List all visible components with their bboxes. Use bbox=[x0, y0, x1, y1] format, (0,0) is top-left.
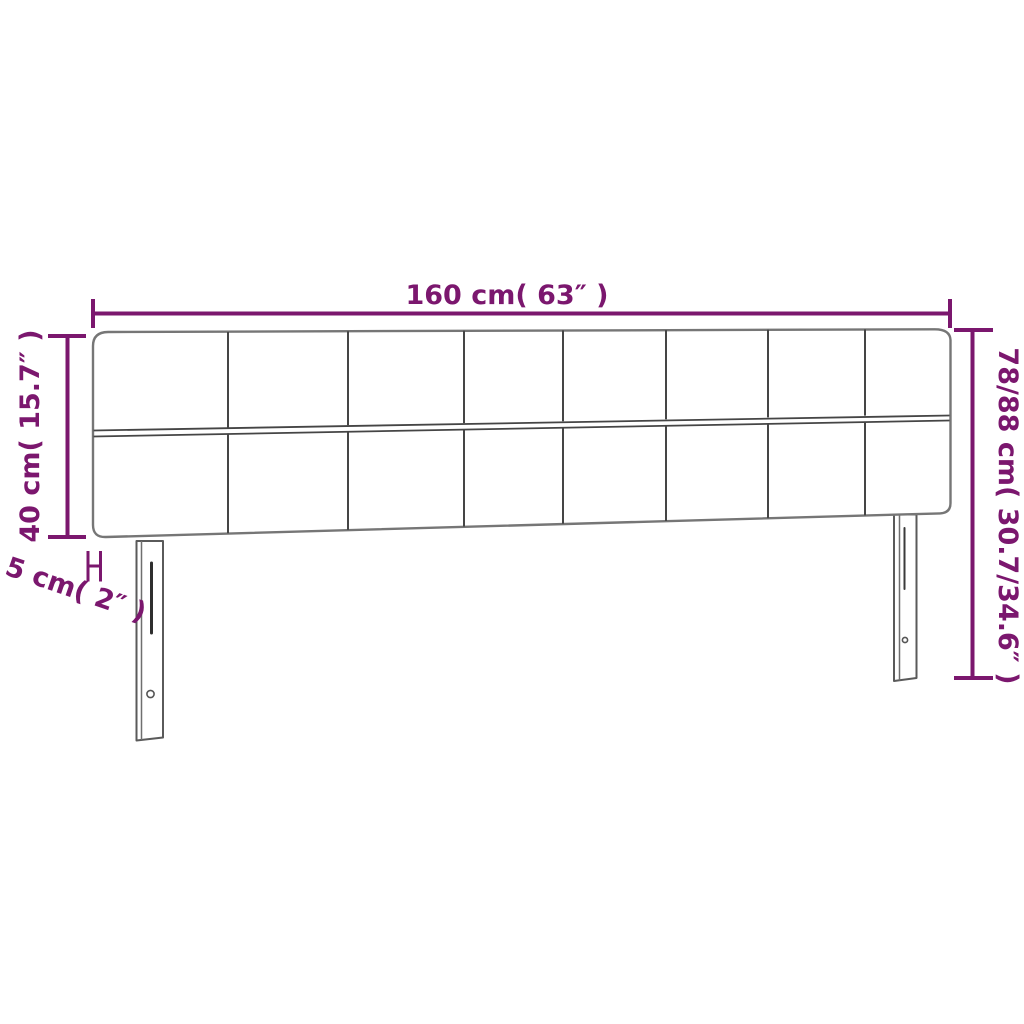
total-height-dimension-line bbox=[956, 330, 991, 678]
thickness-dimension-label: 5 cm( 2″ ) bbox=[1, 551, 150, 628]
total-height-dimension-label: 78/88 cm( 30.7/34.6″ ) bbox=[992, 347, 1023, 684]
diagram-canvas: 160 cm( 63″ ) 78/88 cm( 30.7/34.6″ ) 40 … bbox=[0, 0, 1024, 1024]
width-dimension-label: 160 cm( 63″ ) bbox=[405, 280, 608, 311]
thickness-bracket bbox=[88, 553, 101, 581]
left-leg-body bbox=[137, 541, 164, 741]
headboard-panel bbox=[93, 329, 951, 537]
headboard-dimension-diagram: 160 cm( 63″ ) 78/88 cm( 30.7/34.6″ ) 40 … bbox=[0, 0, 1024, 1024]
panel-height-dimension: 40 cm( 15.7″ ) bbox=[15, 329, 84, 542]
right-leg bbox=[894, 515, 917, 682]
panel-outline bbox=[93, 329, 951, 537]
left-leg bbox=[137, 541, 164, 741]
total-height-dimension: 78/88 cm( 30.7/34.6″ ) bbox=[956, 330, 1023, 685]
thickness-dimension: 5 cm( 2″ ) bbox=[1, 551, 150, 628]
width-dimension: 160 cm( 63″ ) bbox=[93, 280, 950, 326]
panel-height-dimension-line bbox=[50, 336, 84, 537]
panel-height-dimension-label: 40 cm( 15.7″ ) bbox=[15, 329, 46, 542]
